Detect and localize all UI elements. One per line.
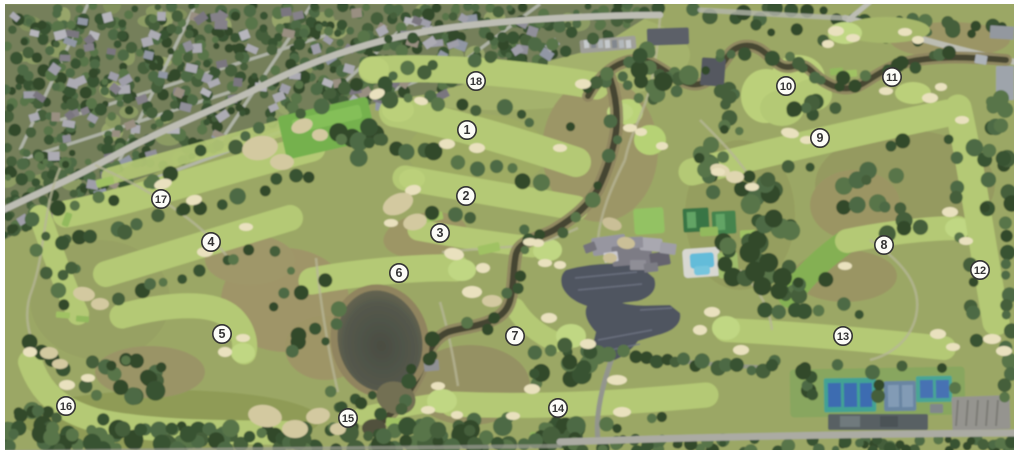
- svg-text:18: 18: [470, 76, 482, 88]
- svg-text:9: 9: [817, 131, 824, 145]
- svg-text:6: 6: [396, 266, 403, 280]
- svg-text:10: 10: [780, 81, 792, 93]
- svg-text:12: 12: [974, 265, 986, 277]
- svg-text:2: 2: [463, 189, 470, 203]
- svg-text:8: 8: [881, 238, 888, 252]
- svg-text:17: 17: [155, 194, 167, 206]
- svg-text:1: 1: [464, 123, 471, 137]
- svg-text:7: 7: [512, 329, 519, 343]
- svg-text:3: 3: [437, 226, 444, 240]
- svg-text:15: 15: [342, 413, 354, 425]
- svg-text:11: 11: [886, 72, 898, 84]
- svg-text:5: 5: [219, 327, 226, 341]
- svg-text:16: 16: [60, 401, 72, 413]
- svg-text:4: 4: [208, 235, 215, 249]
- svg-text:13: 13: [837, 331, 849, 343]
- svg-text:14: 14: [552, 403, 565, 415]
